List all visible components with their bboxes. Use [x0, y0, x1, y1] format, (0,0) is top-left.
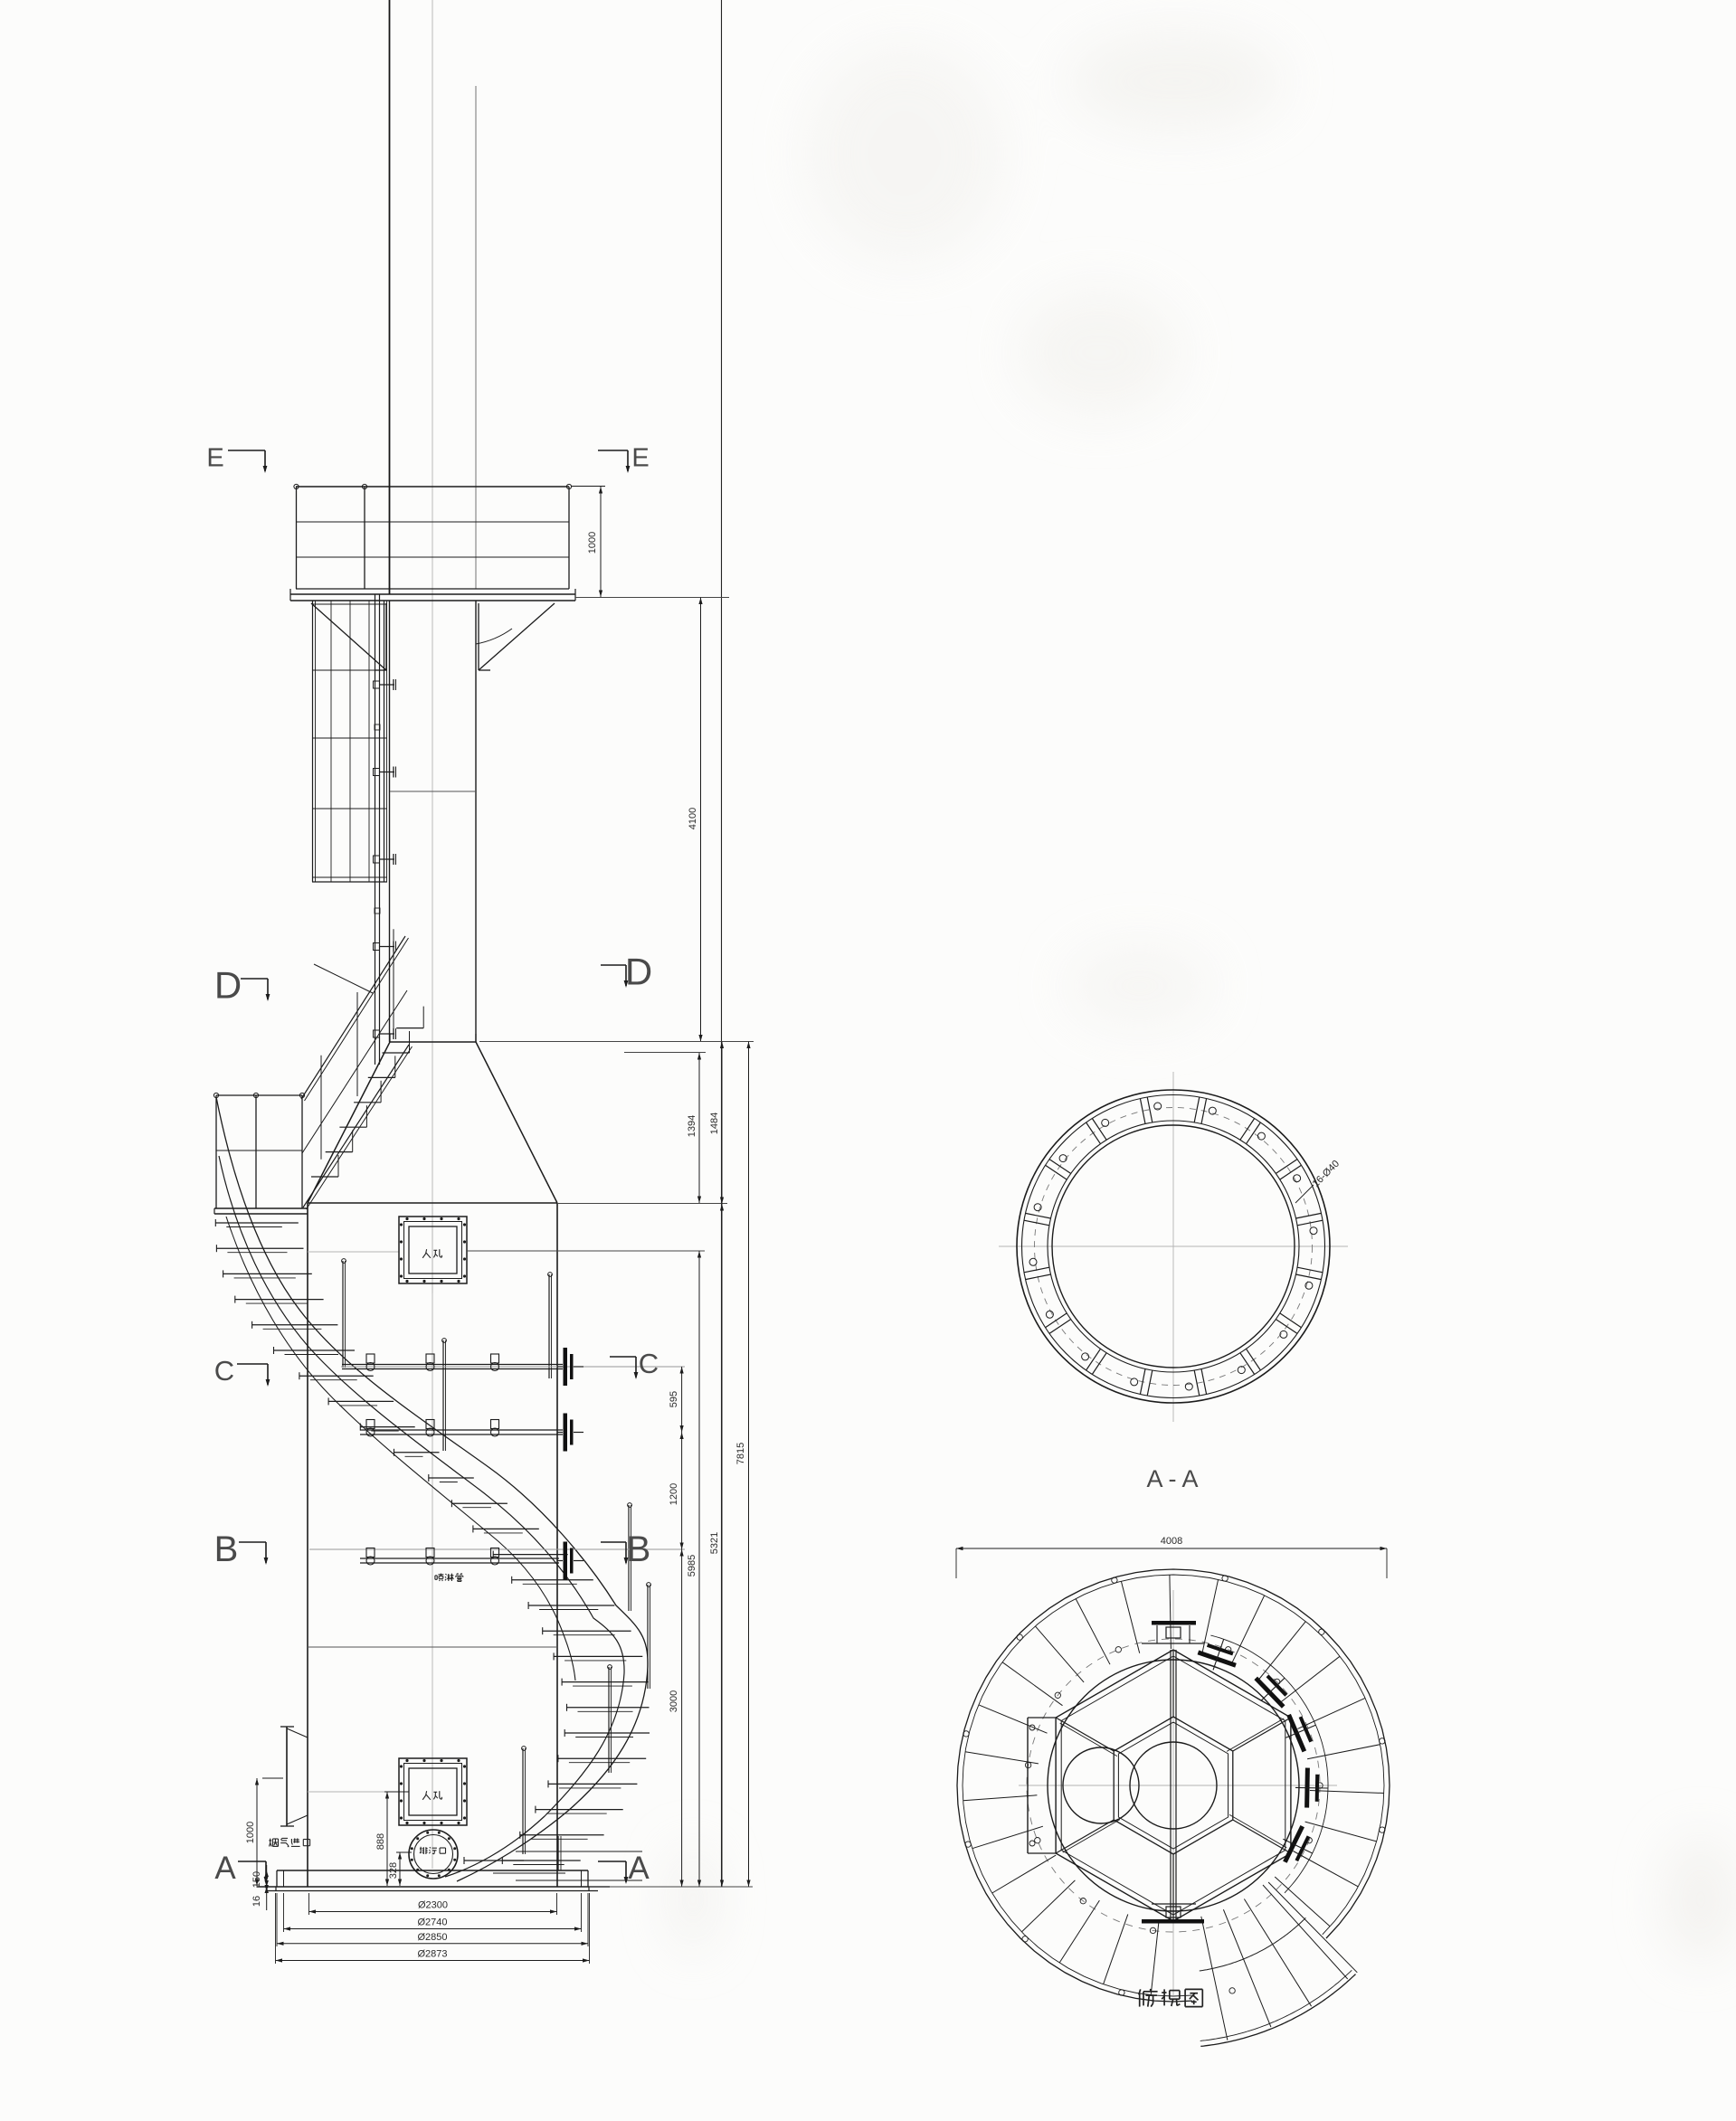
svg-text:B: B — [627, 1529, 651, 1569]
svg-text:4100: 4100 — [688, 808, 698, 829]
svg-text:3000: 3000 — [669, 1690, 679, 1712]
svg-text:A: A — [628, 1851, 650, 1886]
svg-text:7815: 7815 — [735, 1443, 746, 1464]
svg-text:595: 595 — [669, 1391, 679, 1407]
svg-text:5321: 5321 — [709, 1532, 720, 1554]
svg-text:Ø2300: Ø2300 — [418, 1900, 448, 1911]
svg-text:5985: 5985 — [687, 1555, 697, 1577]
svg-text:328: 328 — [388, 1862, 399, 1879]
svg-text:Ø2850: Ø2850 — [417, 1932, 447, 1943]
svg-text:150: 150 — [251, 1871, 262, 1888]
svg-text:1000: 1000 — [587, 532, 598, 554]
svg-text:C: C — [214, 1355, 234, 1387]
svg-text:1394: 1394 — [687, 1115, 697, 1137]
svg-text:1484: 1484 — [709, 1113, 720, 1134]
svg-text:D: D — [214, 963, 242, 1006]
svg-text:Ø2873: Ø2873 — [417, 1949, 447, 1960]
svg-text:A - A: A - A — [1146, 1465, 1198, 1492]
svg-text:E: E — [206, 443, 223, 472]
svg-text:B: B — [214, 1529, 239, 1569]
svg-text:4008: 4008 — [1161, 1536, 1182, 1547]
svg-text:A: A — [214, 1851, 236, 1886]
svg-text:C: C — [639, 1348, 659, 1379]
svg-text:1200: 1200 — [669, 1483, 679, 1505]
svg-text:D: D — [625, 950, 652, 992]
svg-text:888: 888 — [375, 1833, 386, 1850]
svg-text:16: 16 — [251, 1896, 262, 1907]
svg-text:1000: 1000 — [245, 1822, 256, 1843]
svg-text:E: E — [631, 443, 649, 472]
svg-text:Ø2740: Ø2740 — [417, 1917, 447, 1928]
